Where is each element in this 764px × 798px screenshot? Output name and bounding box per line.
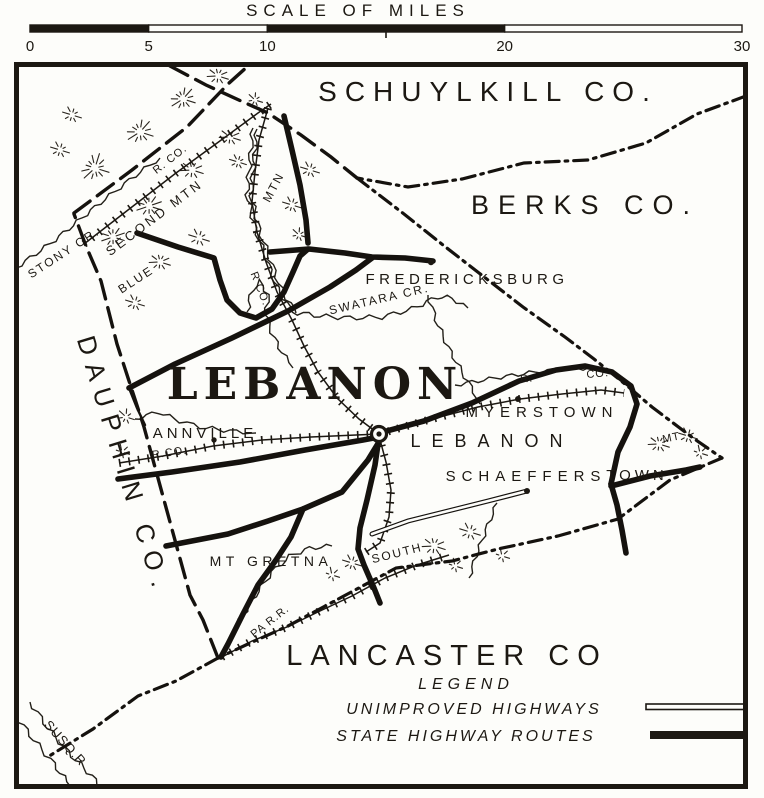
lebanon-city-bullseye-center — [376, 431, 381, 436]
fredericksburg-label: FREDERICKSBURG — [365, 271, 568, 288]
scale-bar-tick-label: 10 — [259, 38, 276, 55]
rr-co-myerstown-r-label: R. — [520, 372, 534, 385]
legend-title: LEGEND — [418, 676, 514, 693]
hachure-stroke — [694, 451, 697, 452]
myerstown-label: MYERSTOWN — [466, 404, 619, 421]
legend-entry-label: STATE HIGHWAY ROUTES — [336, 728, 595, 745]
lancaster-county-label: LANCASTER CO — [286, 640, 608, 672]
hachure-stroke — [496, 554, 499, 555]
rr-co-myerstown-co-label: CO. — [586, 367, 610, 381]
scale-bar-segment — [30, 25, 149, 32]
scale-bar-tick-label: 30 — [734, 38, 751, 55]
scale-bar-tick-label: 20 — [496, 38, 513, 55]
hachure-stroke — [456, 569, 457, 572]
schaefferstown-part2-label: TOWN — [606, 467, 668, 484]
schaefferstown-part1-label: SCHAEFFERS — [446, 468, 607, 485]
hachure-stroke — [503, 559, 504, 562]
hachure-stroke — [141, 136, 142, 140]
fredericksburg-dot — [428, 259, 434, 265]
hachure-stroke — [449, 564, 452, 565]
scale-bar-tick-label: 0 — [26, 38, 34, 55]
lebanon-county-map: SCALE OF MILES05102030 FREDERICKSBURGLEB… — [0, 0, 764, 798]
legend-sample-state-highway-route — [650, 731, 746, 739]
myerstown-dot — [515, 396, 521, 402]
mt-gretna-label: MT GRETNA — [210, 553, 333, 569]
lebanon-county-label: LEBANON — [167, 359, 464, 410]
legend-entry-label: UNIMPROVED HIGHWAYS — [346, 701, 602, 718]
hachure-stroke — [701, 456, 702, 459]
map-page: SCALE OF MILES05102030 FREDERICKSBURGLEB… — [0, 0, 764, 798]
lebanon-city-label: LEBANON — [410, 431, 573, 451]
schuylkill-county-label: SCHUYLKILL CO. — [318, 76, 658, 107]
hachure-stroke — [237, 164, 238, 166]
hachure-stroke — [159, 255, 160, 258]
scale-bar-segment — [267, 25, 504, 32]
hachure-stroke — [217, 69, 218, 73]
scale-bar-title: SCALE OF MILES — [246, 1, 470, 20]
hachure-stroke — [326, 573, 329, 574]
hachure-stroke — [658, 437, 659, 441]
legend-sample-unimproved-highway — [646, 704, 746, 710]
scale-bar-segment — [149, 25, 268, 32]
scale-bar-tick-label: 5 — [144, 38, 152, 55]
road-schaefferstown-west-unimproved-end-dot — [524, 488, 530, 494]
berks-county-label: BERKS CO. — [471, 190, 699, 220]
annville-label: ANNVILLE — [153, 425, 258, 442]
hachure-stroke — [333, 578, 334, 581]
scale-bar-segment — [505, 25, 742, 32]
